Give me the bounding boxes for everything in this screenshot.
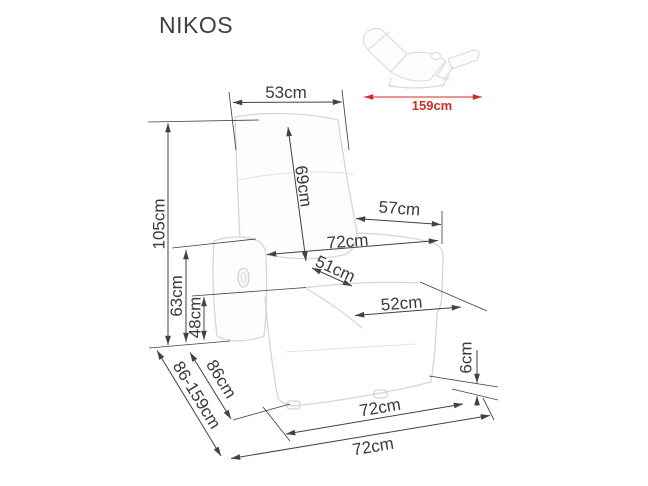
chair-front-seam <box>286 344 416 352</box>
dim-label-back-width: 53cm <box>265 83 307 102</box>
chair-side-right <box>431 313 437 382</box>
ext-depth-bottom <box>233 404 290 420</box>
dim-label-overall-height: 105cm <box>150 198 169 249</box>
chair-seat-top-edge <box>303 282 418 288</box>
inset-reclined-chair-drawing <box>363 28 479 88</box>
dim-label-upper-seat-width: 57cm <box>378 197 421 219</box>
dim-label-overall-width-upper: 72cm <box>326 230 369 252</box>
dim-label-seat-height: 48cm <box>186 297 205 339</box>
dim-label-reclined-length: 159cm <box>412 98 452 113</box>
dim-line-upper-seat-width <box>356 219 441 225</box>
ext-base-width-left <box>263 407 290 441</box>
ext-back-width-right <box>342 90 349 150</box>
dim-label-clearance: 6cm <box>457 341 476 373</box>
chair-body-bottom-edge <box>278 382 431 406</box>
inset-dimension: 159cm <box>364 97 482 113</box>
dimension-diagram-page: 159cm NIKOS 53cm <box>0 0 648 486</box>
inset-footrest <box>448 50 479 69</box>
ext-floor-right <box>452 389 498 400</box>
ext-floor-left <box>149 341 230 348</box>
dimension-diagram: 159cm NIKOS 53cm <box>0 0 648 486</box>
dim-label-base-width: 72cm <box>358 395 402 421</box>
chair-body-left-edge <box>265 297 278 399</box>
chair-seat-front-edge <box>307 289 362 328</box>
inset-dial <box>432 53 441 60</box>
dim-line-back-width <box>233 102 342 103</box>
chair-armrest-left <box>213 237 267 341</box>
dim-label-armrest-height: 63cm <box>167 275 186 317</box>
power-dial-inner <box>241 273 246 282</box>
product-title: NIKOS <box>159 12 233 38</box>
dim-label-seat-width: 52cm <box>380 292 423 314</box>
ext-seat-width-right <box>420 282 487 311</box>
ext-base-bottom <box>429 376 498 387</box>
